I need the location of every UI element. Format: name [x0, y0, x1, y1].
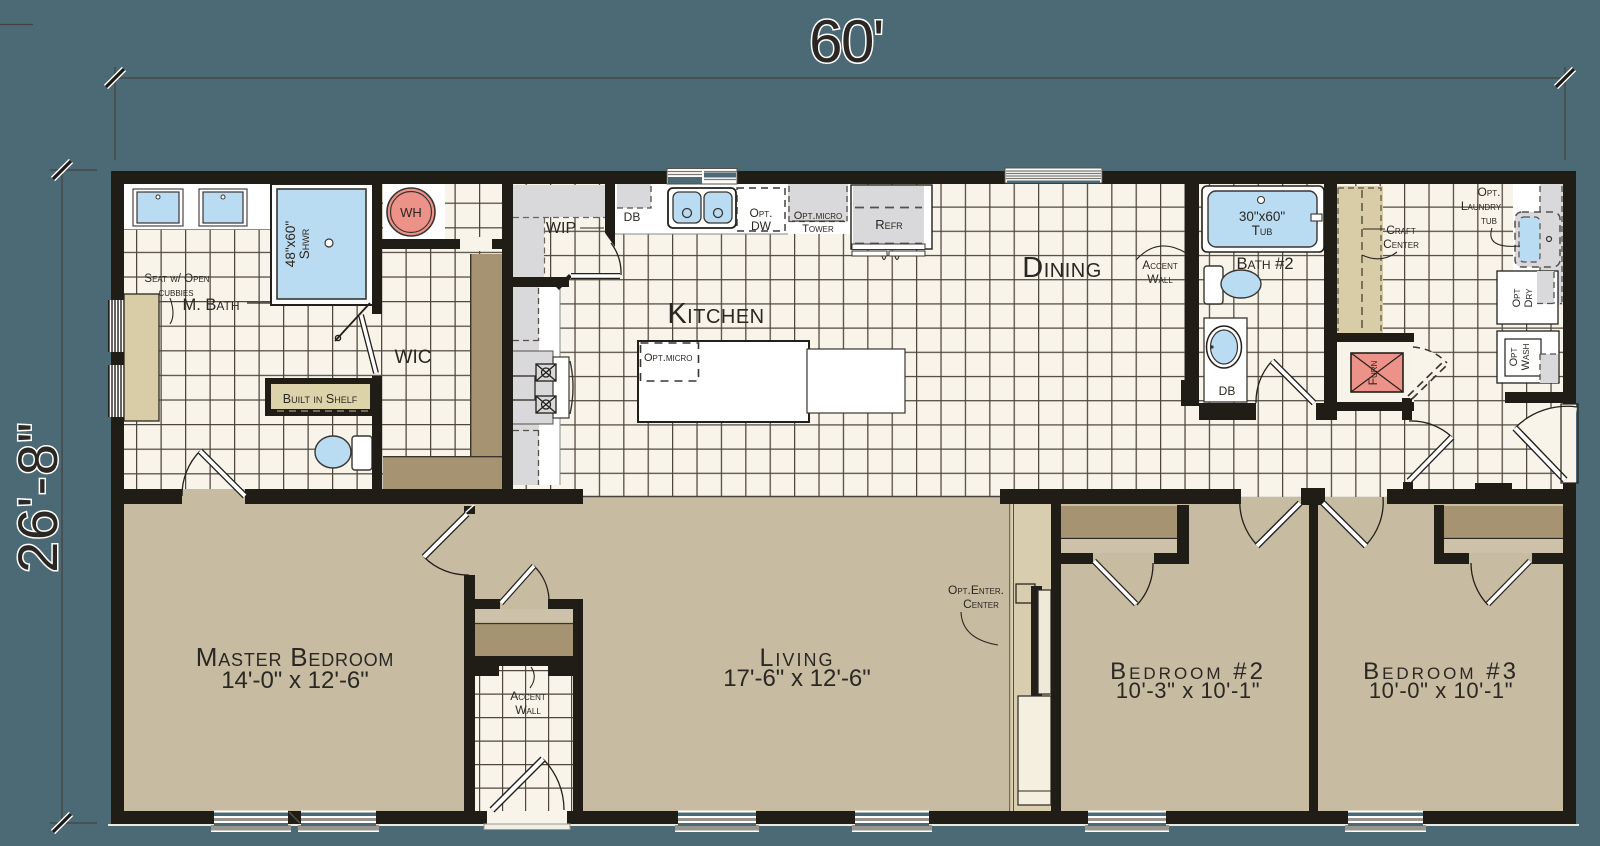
svg-text:Center: Center	[1383, 237, 1419, 251]
svg-text:WH: WH	[400, 205, 422, 220]
svg-text:Wall: Wall	[1147, 272, 1173, 286]
svg-text:Seat w/ Open: Seat w/ Open	[144, 273, 209, 285]
svg-text:60': 60'	[809, 8, 883, 75]
svg-text:WIP: WIP	[546, 220, 576, 237]
svg-text:10'-3" x 10'-1": 10'-3" x 10'-1"	[1116, 678, 1260, 703]
svg-text:30"x60": 30"x60"	[1239, 209, 1286, 224]
svg-text:Craft: Craft	[1386, 223, 1416, 237]
svg-text:Opt.micro: Opt.micro	[644, 352, 693, 364]
svg-text:Laundry: Laundry	[1461, 199, 1502, 213]
svg-text:Furn: Furn	[1366, 360, 1380, 385]
svg-text:Refr: Refr	[875, 217, 903, 232]
svg-text:Tower: Tower	[802, 223, 834, 235]
svg-text:Accent: Accent	[510, 689, 546, 703]
svg-text:tub: tub	[1481, 213, 1497, 227]
svg-text:Opt.micro: Opt.micro	[794, 210, 843, 222]
svg-text:Kitchen: Kitchen	[667, 298, 764, 330]
svg-text:Accent: Accent	[1142, 258, 1178, 272]
svg-text:10'-0" x 10'-1": 10'-0" x 10'-1"	[1369, 678, 1513, 703]
svg-text:Wash: Wash	[1520, 343, 1532, 370]
svg-text:Wall: Wall	[515, 703, 541, 717]
svg-text:Opt: Opt	[1511, 288, 1523, 307]
svg-text:DB: DB	[1219, 384, 1236, 398]
svg-text:Bath #2: Bath #2	[1236, 255, 1293, 273]
svg-text:WIC: WIC	[395, 347, 432, 368]
svg-text:Center: Center	[963, 597, 999, 611]
svg-text:Dry: Dry	[1523, 288, 1535, 308]
svg-text:26'-8": 26'-8"	[6, 421, 69, 573]
svg-text:Shwr: Shwr	[297, 228, 312, 259]
svg-text:DW: DW	[751, 219, 772, 233]
svg-text:DB: DB	[624, 210, 641, 224]
svg-text:cubbies: cubbies	[158, 287, 193, 299]
svg-text:Opt.: Opt.	[750, 206, 773, 220]
svg-text:48"x60": 48"x60"	[283, 221, 298, 268]
svg-text:Tub: Tub	[1252, 223, 1273, 238]
svg-text:14'-0" x 12'-6": 14'-0" x 12'-6"	[221, 667, 369, 694]
svg-text:Opt.Enter.: Opt.Enter.	[948, 583, 1004, 597]
svg-text:Opt: Opt	[1508, 347, 1520, 366]
svg-text:Dining: Dining	[1022, 252, 1102, 284]
svg-text:17'-6" x 12'-6": 17'-6" x 12'-6"	[723, 665, 871, 692]
svg-text:Built in Shelf: Built in Shelf	[283, 392, 358, 406]
svg-text:Opt.: Opt.	[1478, 185, 1501, 199]
